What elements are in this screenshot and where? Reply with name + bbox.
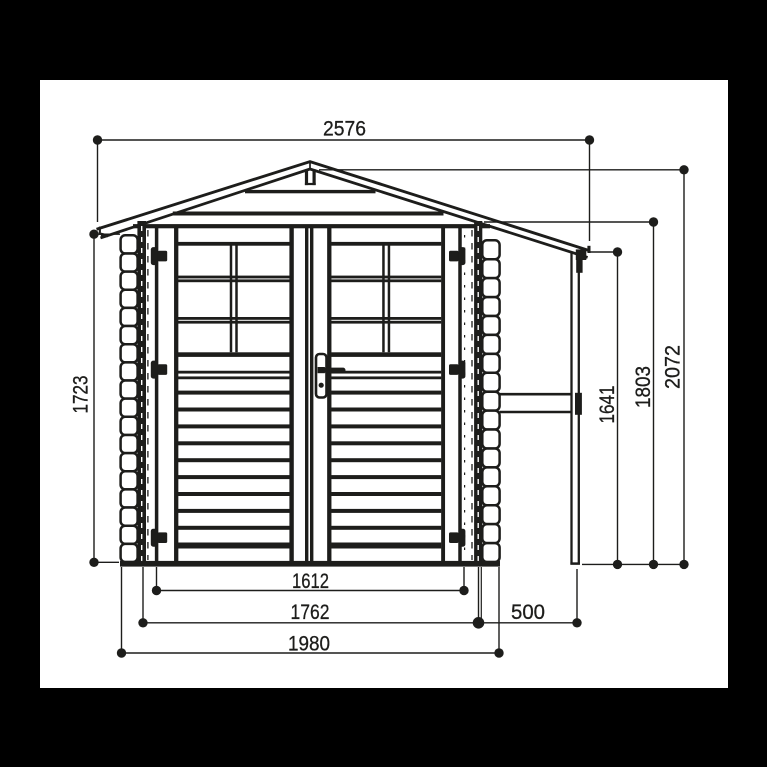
svg-text:1723: 1723	[69, 375, 93, 413]
svg-text:1803: 1803	[631, 366, 655, 408]
svg-text:500: 500	[511, 600, 545, 624]
svg-text:2072: 2072	[661, 345, 685, 389]
svg-text:1762: 1762	[291, 600, 330, 624]
svg-text:2576: 2576	[323, 117, 366, 141]
svg-text:1612: 1612	[292, 569, 329, 593]
svg-text:1980: 1980	[288, 632, 330, 656]
svg-text:1641: 1641	[595, 386, 619, 424]
